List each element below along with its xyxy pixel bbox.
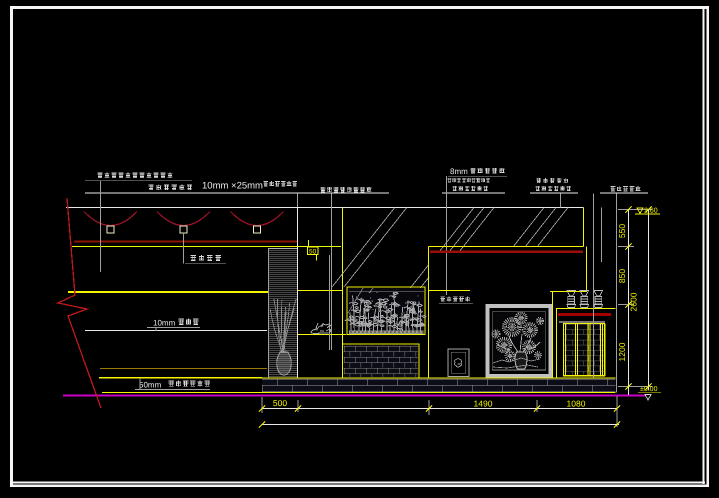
- svg-text:10mm: 10mm: [153, 319, 176, 328]
- svg-text:1490: 1490: [474, 399, 493, 409]
- svg-text:2600: 2600: [629, 292, 639, 311]
- svg-text:500: 500: [273, 398, 287, 408]
- svg-text:1200: 1200: [617, 342, 627, 361]
- svg-text:50mm: 50mm: [139, 381, 162, 390]
- svg-text:50: 50: [309, 249, 317, 256]
- svg-text:1080: 1080: [567, 399, 586, 409]
- svg-text:8mm: 8mm: [450, 167, 468, 176]
- svg-text:550: 550: [617, 224, 627, 238]
- svg-text:±0.00: ±0.00: [640, 386, 658, 393]
- svg-text:10mm ×25mm: 10mm ×25mm: [202, 181, 263, 192]
- svg-text:850: 850: [617, 269, 627, 283]
- svg-text:2.60: 2.60: [644, 208, 658, 215]
